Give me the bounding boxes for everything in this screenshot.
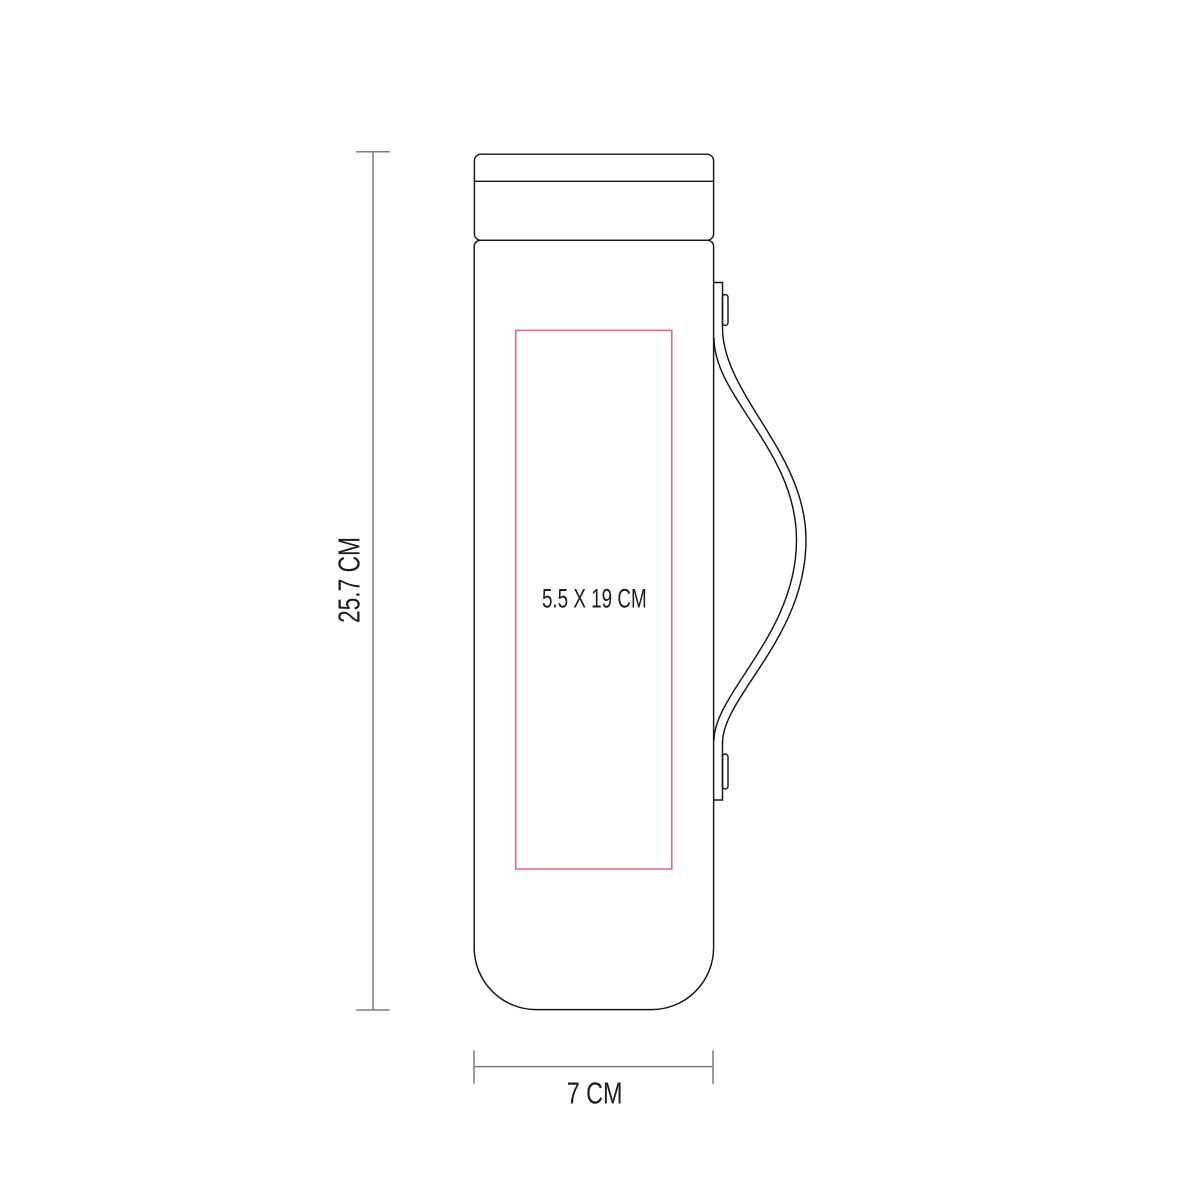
svg-text:25.7 CM: 25.7 CM: [334, 537, 367, 623]
svg-text:7 CM: 7 CM: [567, 1077, 623, 1110]
svg-text:5.5 X 19 CM: 5.5 X 19 CM: [542, 584, 647, 614]
